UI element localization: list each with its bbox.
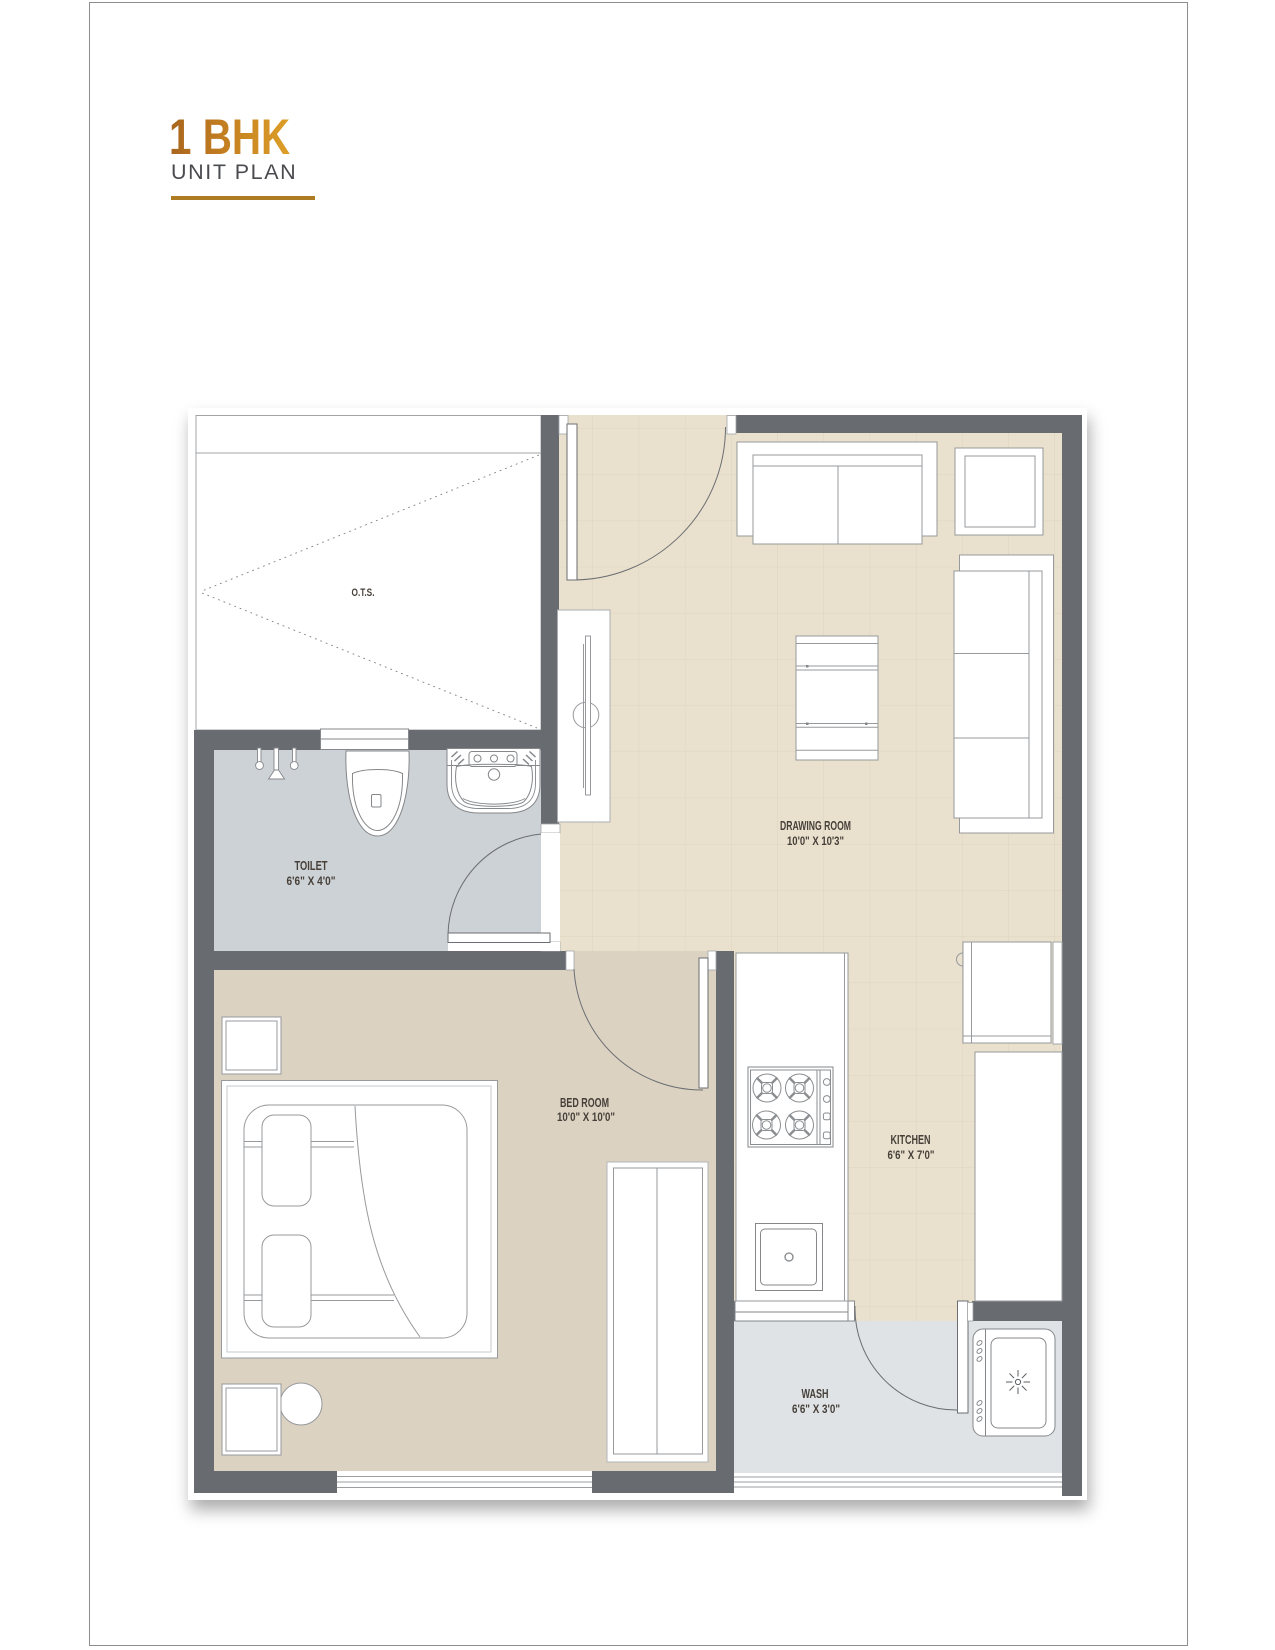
svg-text:10'0" X 10'0": 10'0" X 10'0" <box>557 1112 615 1124</box>
svg-text:WASH: WASH <box>802 1386 829 1401</box>
svg-text:DRAWING ROOM: DRAWING ROOM <box>780 818 851 833</box>
svg-text:6'6" X 3'0": 6'6" X 3'0" <box>792 1404 840 1416</box>
svg-text:10'0" X 10'3": 10'0" X 10'3" <box>787 836 844 848</box>
svg-text:KITCHEN: KITCHEN <box>891 1132 931 1147</box>
svg-text:BED ROOM: BED ROOM <box>560 1095 609 1110</box>
svg-text:6'6" X 7'0": 6'6" X 7'0" <box>888 1150 935 1162</box>
svg-text:O.T.S.: O.T.S. <box>352 587 375 599</box>
svg-text:6'6" X 4'0": 6'6" X 4'0" <box>287 876 336 888</box>
svg-text:TOILET: TOILET <box>295 858 328 873</box>
